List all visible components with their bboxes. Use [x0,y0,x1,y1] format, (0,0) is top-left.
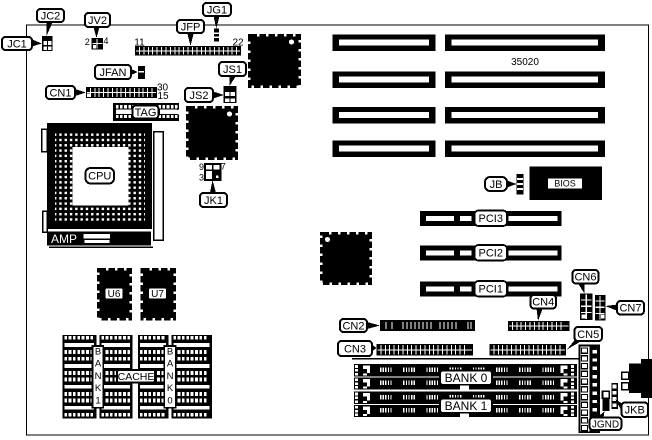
svg-text:PCI1: PCI1 [479,284,503,296]
svg-text:PCI2: PCI2 [479,248,503,260]
svg-text:BANK 1: BANK 1 [445,399,488,413]
svg-text:CN5: CN5 [577,329,599,341]
svg-text:JC1: JC1 [7,38,27,50]
svg-text:2: 2 [85,37,90,47]
svg-text:BANK 0: BANK 0 [445,371,488,385]
svg-text:CN6: CN6 [574,272,596,284]
svg-text:BIOS: BIOS [554,179,576,189]
svg-text:JFAN: JFAN [100,67,127,79]
svg-text:3: 3 [199,173,204,183]
svg-text:35020: 35020 [511,57,539,68]
svg-text:TAG: TAG [135,107,157,119]
svg-text:22: 22 [232,38,244,49]
svg-text:JGND: JGND [592,419,619,430]
svg-text:A: A [167,359,174,370]
svg-text:CN3: CN3 [344,343,366,355]
svg-text:AMP: AMP [51,232,77,246]
svg-text:JB: JB [490,179,503,191]
svg-text:JS2: JS2 [190,90,209,102]
svg-text:N: N [95,371,102,382]
svg-text:CACHE: CACHE [118,371,155,383]
svg-text:A: A [95,359,102,370]
svg-text:JV2: JV2 [88,15,107,27]
svg-text:B: B [167,347,173,358]
svg-text:JG1: JG1 [207,4,227,16]
svg-text:0: 0 [167,395,172,406]
svg-text:CN7: CN7 [619,303,641,315]
svg-text:CN2: CN2 [342,320,364,332]
svg-text:JKB: JKB [625,405,645,417]
svg-text:K: K [167,383,174,394]
svg-text:K: K [95,383,102,394]
svg-text:15: 15 [157,91,169,102]
svg-text:1: 1 [95,395,100,406]
svg-text:CN1: CN1 [49,87,71,99]
svg-text:CPU: CPU [88,171,111,183]
svg-text:JS1: JS1 [223,64,242,76]
svg-text:JFP: JFP [181,21,201,33]
svg-text:PCI3: PCI3 [479,213,503,225]
svg-text:U6: U6 [108,289,121,300]
svg-text:9: 9 [199,162,204,172]
svg-text:CN4: CN4 [532,297,554,309]
svg-text:JK1: JK1 [204,195,223,207]
svg-text:N: N [167,371,174,382]
svg-text:4: 4 [103,36,108,46]
svg-text:U7: U7 [151,289,164,300]
svg-text:11: 11 [134,38,145,49]
svg-text:7: 7 [221,162,226,172]
svg-text:B: B [95,347,101,358]
svg-text:JC2: JC2 [41,10,61,22]
